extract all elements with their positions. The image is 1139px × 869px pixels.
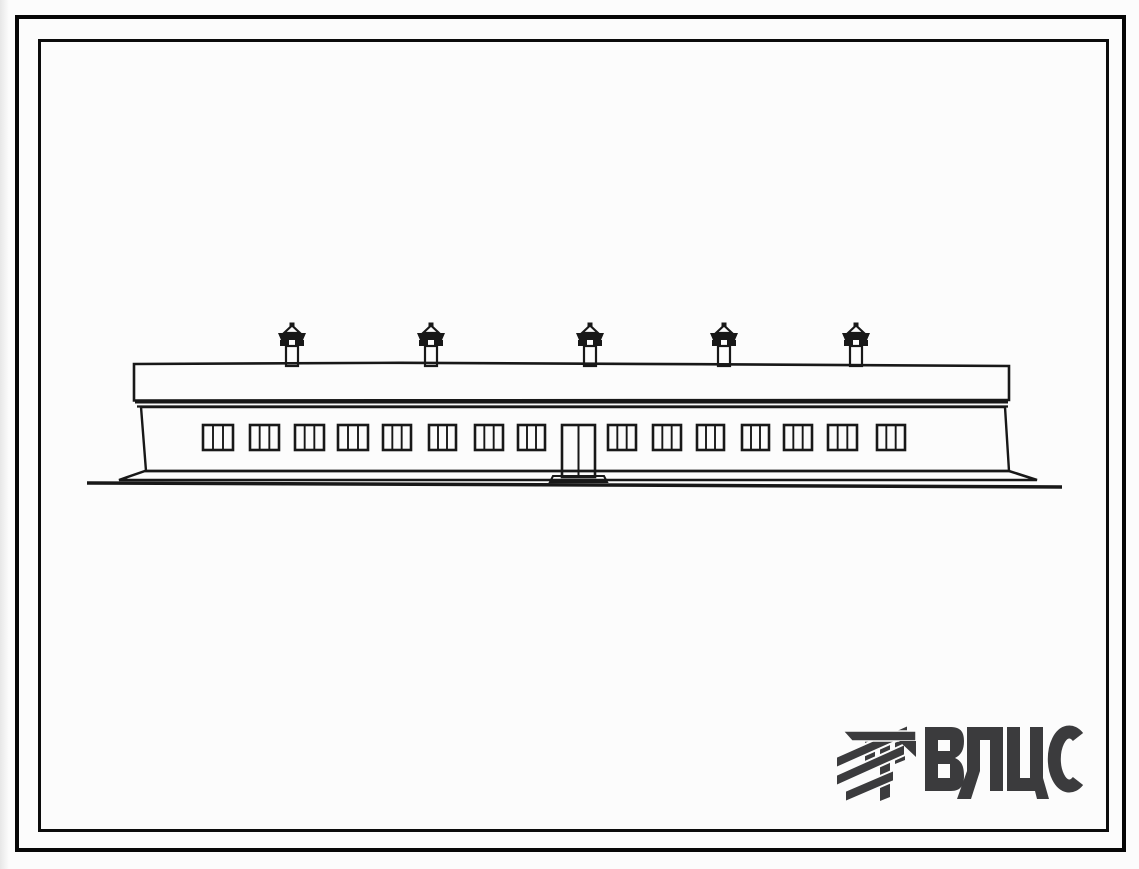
vent-cap-flap: [859, 340, 868, 346]
vent-cap-peak: [582, 326, 598, 334]
entrance-door: [550, 425, 607, 482]
vent-cap-knob: [854, 323, 859, 327]
vent-cap-flap: [434, 340, 443, 346]
scanned-page: ВЦИС: [0, 0, 1139, 869]
window-frame: [518, 425, 545, 450]
vent-cap-peak: [423, 326, 439, 334]
roof-fascia: [134, 363, 1009, 401]
window: [653, 425, 681, 450]
window: [697, 425, 724, 450]
vent-cap-flap: [593, 340, 602, 346]
window: [828, 425, 857, 450]
vcis-logo: [836, 725, 1078, 802]
window: [784, 425, 812, 450]
logo-letter: [1007, 727, 1049, 799]
window-frame: [203, 425, 233, 450]
vent-stack: [850, 346, 862, 366]
window-frame: [250, 425, 279, 450]
ground-line: [87, 483, 1062, 487]
roof-vent: [278, 323, 306, 367]
window-frame: [877, 425, 905, 450]
window: [742, 425, 769, 450]
icon-top-bar: [843, 731, 916, 741]
window-frame: [383, 425, 411, 450]
window: [203, 425, 233, 450]
vcis-logo-wordmark: [925, 727, 1078, 799]
vent-cap-flap: [419, 340, 428, 346]
window-row: [203, 425, 905, 450]
building-elevation-drawing: [87, 323, 1062, 488]
vent-cap-flap: [712, 340, 721, 346]
wall-face: [141, 407, 1009, 471]
window-frame: [828, 425, 857, 450]
window-frame: [475, 425, 503, 450]
window-frame: [338, 425, 368, 450]
window: [338, 425, 368, 450]
vent-cap-flap: [295, 340, 304, 346]
window: [250, 425, 279, 450]
window-frame: [608, 425, 636, 450]
roof-vent: [710, 323, 738, 367]
window-frame: [295, 425, 324, 450]
vent-cap-knob: [588, 323, 593, 327]
vent-cap-flap: [578, 340, 587, 346]
sheet-canvas: [0, 0, 1139, 869]
window: [383, 425, 411, 450]
vent-cap-flap: [844, 340, 853, 346]
vent-cap-peak: [716, 326, 732, 334]
window: [518, 425, 545, 450]
vent-cap-knob: [722, 323, 727, 327]
logo-letter: [1054, 732, 1078, 786]
vcis-logo-icon: [836, 725, 916, 802]
window: [295, 425, 324, 450]
vent-cap-knob: [290, 323, 295, 327]
roof-vent: [576, 323, 604, 367]
vent-stack: [718, 346, 730, 366]
vent-cap-flap: [727, 340, 736, 346]
vent-cap-knob: [429, 323, 434, 327]
window-frame: [429, 425, 456, 450]
logo-letter: [957, 727, 1003, 799]
window: [429, 425, 456, 450]
vent-cap-flap: [280, 340, 289, 346]
logo-letter: [925, 727, 964, 791]
window-frame: [697, 425, 724, 450]
window: [475, 425, 503, 450]
window-frame: [784, 425, 812, 450]
window: [608, 425, 636, 450]
vent-cap-peak: [848, 326, 864, 334]
roof-vents: [278, 323, 870, 367]
window-frame: [742, 425, 769, 450]
roof-vent: [417, 323, 445, 367]
vent-cap-peak: [284, 326, 300, 334]
roof-vent: [842, 323, 870, 367]
window-frame: [653, 425, 681, 450]
window: [877, 425, 905, 450]
